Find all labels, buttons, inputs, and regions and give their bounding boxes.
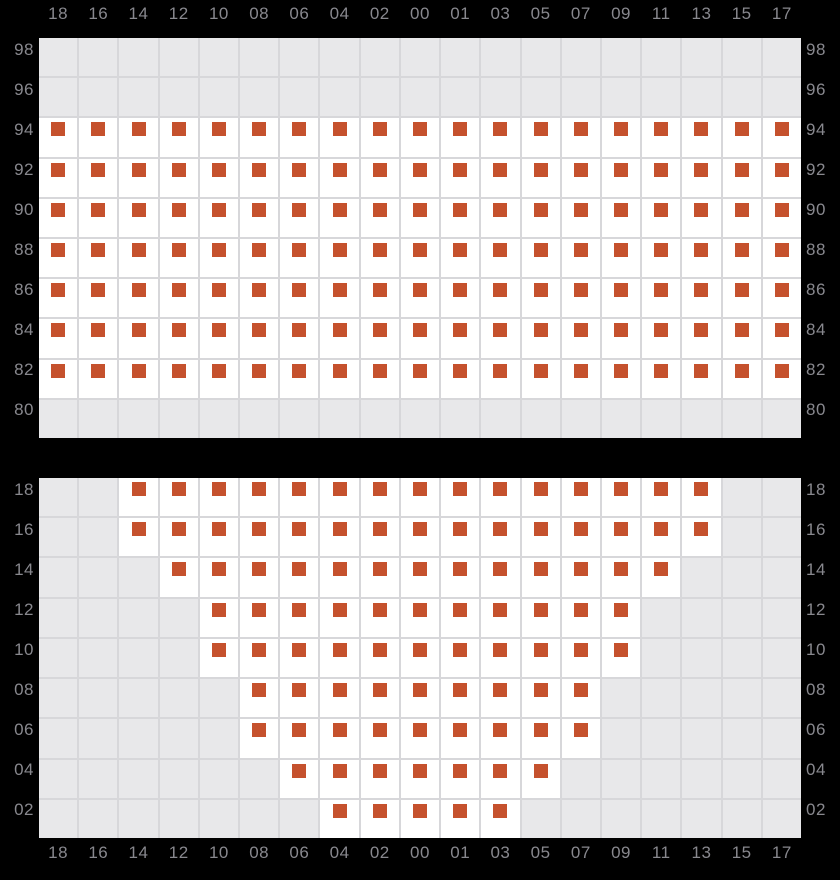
data-point-marker: [453, 122, 467, 136]
grid-cell-02-90[interactable]: [361, 199, 399, 237]
grid-cell-08-82[interactable]: [240, 360, 278, 398]
grid-cell-14-84[interactable]: [119, 319, 157, 357]
grid-cell-17-86[interactable]: [763, 279, 801, 317]
grid-cell-01-04[interactable]: [441, 760, 479, 798]
grid-cell-03-88[interactable]: [481, 239, 519, 277]
grid-cell-03-92[interactable]: [481, 159, 519, 197]
data-point-marker: [132, 243, 146, 257]
grid-cell-14-06: [119, 719, 157, 757]
grid-cell-16-94[interactable]: [79, 118, 117, 156]
grid-cell-11-18[interactable]: [642, 478, 680, 516]
grid-cell-16-92[interactable]: [79, 159, 117, 197]
grid-cell-09-18[interactable]: [602, 478, 640, 516]
data-point-marker: [212, 203, 226, 217]
grid-cell-14-80: [119, 400, 157, 438]
grid-cell-10-12[interactable]: [200, 599, 238, 637]
grid-cell-13-94[interactable]: [682, 118, 720, 156]
data-point-marker: [292, 482, 306, 496]
grid-cell-08-86[interactable]: [240, 279, 278, 317]
data-point-marker: [212, 323, 226, 337]
grid-cell-06-16[interactable]: [280, 518, 318, 556]
grid-cell-07-90[interactable]: [562, 199, 600, 237]
grid-cell-04-88[interactable]: [320, 239, 358, 277]
grid-cell-14-92[interactable]: [119, 159, 157, 197]
grid-cell-15-84[interactable]: [723, 319, 761, 357]
grid-cell-12-12: [160, 599, 198, 637]
grid-cell-05-12[interactable]: [522, 599, 560, 637]
grid-cell-05-98: [522, 38, 560, 76]
grid-cell-00-82[interactable]: [401, 360, 439, 398]
data-point-marker: [252, 603, 266, 617]
grid-cell-06-12[interactable]: [280, 599, 318, 637]
grid-cell-08-92[interactable]: [240, 159, 278, 197]
grid-cell-04-10[interactable]: [320, 639, 358, 677]
data-point-marker: [132, 163, 146, 177]
grid-cell-17-90[interactable]: [763, 199, 801, 237]
grid-cell-01-84[interactable]: [441, 319, 479, 357]
grid-cell-09-94[interactable]: [602, 118, 640, 156]
grid-cell-01-92[interactable]: [441, 159, 479, 197]
grid-cell-07-16[interactable]: [562, 518, 600, 556]
grid-cell-02-18[interactable]: [361, 478, 399, 516]
grid-cell-13-84[interactable]: [682, 319, 720, 357]
grid-cell-14-86[interactable]: [119, 279, 157, 317]
grid-cell-01-86[interactable]: [441, 279, 479, 317]
grid-cell-02-94[interactable]: [361, 118, 399, 156]
grid-cell-11-16[interactable]: [642, 518, 680, 556]
grid-cell-10-82[interactable]: [200, 360, 238, 398]
grid-cell-03-18[interactable]: [481, 478, 519, 516]
grid-cell-18-98: [39, 38, 77, 76]
grid-cell-15-06: [723, 719, 761, 757]
data-point-marker: [212, 643, 226, 657]
grid-cell-17-88[interactable]: [763, 239, 801, 277]
grid-cell-15-82[interactable]: [723, 360, 761, 398]
grid-cell-14-90[interactable]: [119, 199, 157, 237]
grid-cell-02-04[interactable]: [361, 760, 399, 798]
grid-cell-06-82[interactable]: [280, 360, 318, 398]
grid-cell-00-98: [401, 38, 439, 76]
data-point-marker: [775, 243, 789, 257]
data-point-marker: [172, 364, 186, 378]
grid-cell-06-18[interactable]: [280, 478, 318, 516]
grid-cell-01-16[interactable]: [441, 518, 479, 556]
grid-cell-00-02[interactable]: [401, 800, 439, 838]
grid-cell-08-88[interactable]: [240, 239, 278, 277]
grid-cell-11-82[interactable]: [642, 360, 680, 398]
grid-cell-03-98: [481, 38, 519, 76]
x-axis-label: 18: [39, 843, 77, 863]
grid-cell-10-88[interactable]: [200, 239, 238, 277]
data-point-marker: [453, 683, 467, 697]
grid-cell-04-82[interactable]: [320, 360, 358, 398]
grid-cell-06-84[interactable]: [280, 319, 318, 357]
data-point-marker: [654, 562, 668, 576]
grid-cell-03-94[interactable]: [481, 118, 519, 156]
grid-cell-09-10[interactable]: [602, 639, 640, 677]
grid-cell-01-88[interactable]: [441, 239, 479, 277]
grid-cell-16-82[interactable]: [79, 360, 117, 398]
grid-cell-12-02: [160, 800, 198, 838]
grid-cell-00-14[interactable]: [401, 558, 439, 596]
data-point-marker: [614, 643, 628, 657]
grid-cell-06-94[interactable]: [280, 118, 318, 156]
grid-cell-07-14[interactable]: [562, 558, 600, 596]
grid-cell-07-84[interactable]: [562, 319, 600, 357]
grid-cell-00-86[interactable]: [401, 279, 439, 317]
grid-cell-05-82[interactable]: [522, 360, 560, 398]
data-point-marker: [534, 323, 548, 337]
data-point-marker: [252, 203, 266, 217]
grid-cell-04-84[interactable]: [320, 319, 358, 357]
grid-cell-09-88[interactable]: [602, 239, 640, 277]
grid-cell-01-90[interactable]: [441, 199, 479, 237]
grid-cell-04-90[interactable]: [320, 199, 358, 237]
grid-cell-10-94[interactable]: [200, 118, 238, 156]
grid-cell-02-86[interactable]: [361, 279, 399, 317]
grid-cell-03-06[interactable]: [481, 719, 519, 757]
data-point-marker: [172, 122, 186, 136]
data-point-marker: [413, 804, 427, 818]
data-point-marker: [534, 482, 548, 496]
grid-cell-08-08[interactable]: [240, 679, 278, 717]
grid-cell-18-82[interactable]: [39, 360, 77, 398]
grid-cell-17-84[interactable]: [763, 319, 801, 357]
data-point-marker: [252, 683, 266, 697]
data-point-marker: [534, 764, 548, 778]
data-point-marker: [413, 364, 427, 378]
grid-cell-07-94[interactable]: [562, 118, 600, 156]
grid-cell-03-82[interactable]: [481, 360, 519, 398]
grid-cell-06-04[interactable]: [280, 760, 318, 798]
grid-cell-14-14: [119, 558, 157, 596]
grid-cell-06-06[interactable]: [280, 719, 318, 757]
grid-cell-01-82[interactable]: [441, 360, 479, 398]
y-axis-label: 12: [0, 598, 34, 638]
grid-cell-07-08[interactable]: [562, 679, 600, 717]
grid-cell-06-96: [280, 78, 318, 116]
data-point-marker: [493, 683, 507, 697]
grid-cell-03-16[interactable]: [481, 518, 519, 556]
grid-cell-12-90[interactable]: [160, 199, 198, 237]
grid-cell-01-02[interactable]: [441, 800, 479, 838]
grid-cell-04-06[interactable]: [320, 719, 358, 757]
grid-cell-01-14[interactable]: [441, 558, 479, 596]
grid-cell-12-92[interactable]: [160, 159, 198, 197]
grid-cell-09-98: [602, 38, 640, 76]
grid-cell-15-02: [723, 800, 761, 838]
grid-cell-08-12[interactable]: [240, 599, 278, 637]
grid-cell-11-88[interactable]: [642, 239, 680, 277]
grid-cell-02-06[interactable]: [361, 719, 399, 757]
grid-cell-07-82[interactable]: [562, 360, 600, 398]
grid-cell-08-10[interactable]: [240, 639, 278, 677]
x-axis-label: 15: [723, 4, 761, 24]
y-axis-label: 90: [0, 198, 34, 238]
grid-cell-12-84[interactable]: [160, 319, 198, 357]
grid-cell-01-08[interactable]: [441, 679, 479, 717]
grid-cell-04-16[interactable]: [320, 518, 358, 556]
grid-cell-05-16[interactable]: [522, 518, 560, 556]
grid-cell-15-92[interactable]: [723, 159, 761, 197]
grid-cell-03-84[interactable]: [481, 319, 519, 357]
grid-cell-09-14[interactable]: [602, 558, 640, 596]
grid-cell-16-90[interactable]: [79, 199, 117, 237]
data-point-marker: [333, 122, 347, 136]
grid-cell-02-08[interactable]: [361, 679, 399, 717]
x-axis-label: 02: [361, 4, 399, 24]
grid-cell-00-88[interactable]: [401, 239, 439, 277]
grid-cell-13-88[interactable]: [682, 239, 720, 277]
grid-cell-16-14: [79, 558, 117, 596]
grid-cell-09-96: [602, 78, 640, 116]
grid-cell-03-14[interactable]: [481, 558, 519, 596]
grid-cell-04-94[interactable]: [320, 118, 358, 156]
grid-cell-13-18[interactable]: [682, 478, 720, 516]
grid-cell-16-86[interactable]: [79, 279, 117, 317]
x-axis-label: 05: [522, 4, 560, 24]
grid-cell-06-08[interactable]: [280, 679, 318, 717]
grid-cell-10-16[interactable]: [200, 518, 238, 556]
grid-cell-10-84[interactable]: [200, 319, 238, 357]
y-axis-label: 86: [806, 278, 840, 318]
grid-cell-02-84[interactable]: [361, 319, 399, 357]
grid-cell-04-04[interactable]: [320, 760, 358, 798]
data-point-marker: [614, 163, 628, 177]
grid-cell-06-92[interactable]: [280, 159, 318, 197]
grid-cell-18-90[interactable]: [39, 199, 77, 237]
grid-cell-09-92[interactable]: [602, 159, 640, 197]
grid-cell-18-88[interactable]: [39, 239, 77, 277]
data-point-marker: [51, 122, 65, 136]
grid-cell-16-18: [79, 478, 117, 516]
grid-cell-00-10[interactable]: [401, 639, 439, 677]
grid-cell-12-86[interactable]: [160, 279, 198, 317]
grid-cell-00-12[interactable]: [401, 599, 439, 637]
grid-cell-07-86[interactable]: [562, 279, 600, 317]
grid-cell-09-82[interactable]: [602, 360, 640, 398]
grid-cell-09-90[interactable]: [602, 199, 640, 237]
grid-cell-06-86[interactable]: [280, 279, 318, 317]
grid-cell-01-12[interactable]: [441, 599, 479, 637]
grid-cell-12-14[interactable]: [160, 558, 198, 596]
grid-cell-03-12[interactable]: [481, 599, 519, 637]
grid-cell-00-04[interactable]: [401, 760, 439, 798]
data-point-marker: [493, 364, 507, 378]
data-point-marker: [373, 163, 387, 177]
grid-cell-01-18[interactable]: [441, 478, 479, 516]
grid-cell-11-92[interactable]: [642, 159, 680, 197]
grid-cell-14-94[interactable]: [119, 118, 157, 156]
x-axis-label: 06: [280, 4, 318, 24]
grid-cell-15-90[interactable]: [723, 199, 761, 237]
grid-cell-08-06[interactable]: [240, 719, 278, 757]
grid-cell-07-18[interactable]: [562, 478, 600, 516]
grid-cell-14-04: [119, 760, 157, 798]
y-axis-label: 06: [806, 718, 840, 758]
grid-cell-13-92[interactable]: [682, 159, 720, 197]
grid-cell-10-10[interactable]: [200, 639, 238, 677]
grid-cell-11-84[interactable]: [642, 319, 680, 357]
grid-cell-05-18[interactable]: [522, 478, 560, 516]
grid-cell-01-94[interactable]: [441, 118, 479, 156]
grid-cell-05-04[interactable]: [522, 760, 560, 798]
grid-cell-04-86[interactable]: [320, 279, 358, 317]
grid-cell-17-82[interactable]: [763, 360, 801, 398]
grid-cell-12-94[interactable]: [160, 118, 198, 156]
data-point-marker: [91, 203, 105, 217]
grid-cell-13-90[interactable]: [682, 199, 720, 237]
data-point-marker: [172, 283, 186, 297]
grid-cell-00-94[interactable]: [401, 118, 439, 156]
grid-cell-13-82[interactable]: [682, 360, 720, 398]
grid-cell-05-90[interactable]: [522, 199, 560, 237]
grid-cell-05-86[interactable]: [522, 279, 560, 317]
grid-cell-00-90[interactable]: [401, 199, 439, 237]
grid-cell-11-14[interactable]: [642, 558, 680, 596]
grid-cell-18-94[interactable]: [39, 118, 77, 156]
grid-cell-11-94[interactable]: [642, 118, 680, 156]
grid-cell-05-14[interactable]: [522, 558, 560, 596]
data-point-marker: [333, 364, 347, 378]
data-point-marker: [333, 522, 347, 536]
grid-cell-14-18[interactable]: [119, 478, 157, 516]
grid-cell-10-14[interactable]: [200, 558, 238, 596]
data-point-marker: [453, 163, 467, 177]
grid-cell-12-88[interactable]: [160, 239, 198, 277]
data-point-marker: [534, 122, 548, 136]
grid-cell-00-84[interactable]: [401, 319, 439, 357]
grid-cell-02-16[interactable]: [361, 518, 399, 556]
grid-cell-12-82[interactable]: [160, 360, 198, 398]
grid-cell-05-84[interactable]: [522, 319, 560, 357]
grid-cell-08-84[interactable]: [240, 319, 278, 357]
grid-cell-06-90[interactable]: [280, 199, 318, 237]
grid-cell-05-92[interactable]: [522, 159, 560, 197]
grid-cell-05-94[interactable]: [522, 118, 560, 156]
grid-cell-02-10[interactable]: [361, 639, 399, 677]
grid-cell-05-06[interactable]: [522, 719, 560, 757]
grid-cell-08-18[interactable]: [240, 478, 278, 516]
grid-cell-02-12[interactable]: [361, 599, 399, 637]
grid-cell-08-14[interactable]: [240, 558, 278, 596]
grid-cell-15-88[interactable]: [723, 239, 761, 277]
grid-cell-04-08[interactable]: [320, 679, 358, 717]
grid-cell-07-88[interactable]: [562, 239, 600, 277]
grid-cell-00-06[interactable]: [401, 719, 439, 757]
grid-cell-03-02[interactable]: [481, 800, 519, 838]
grid-cell-07-06[interactable]: [562, 719, 600, 757]
grid-cell-09-84[interactable]: [602, 319, 640, 357]
grid-cell-05-08[interactable]: [522, 679, 560, 717]
grid-cell-10-90[interactable]: [200, 199, 238, 237]
grid-cell-04-14[interactable]: [320, 558, 358, 596]
grid-cell-00-08[interactable]: [401, 679, 439, 717]
grid-cell-04-92[interactable]: [320, 159, 358, 197]
data-point-marker: [172, 323, 186, 337]
grid-cell-01-06[interactable]: [441, 719, 479, 757]
grid-cell-07-12[interactable]: [562, 599, 600, 637]
grid-cell-03-86[interactable]: [481, 279, 519, 317]
grid-cell-14-88[interactable]: [119, 239, 157, 277]
grid-cell-07-10[interactable]: [562, 639, 600, 677]
grid-cell-06-10[interactable]: [280, 639, 318, 677]
grid-cell-05-10[interactable]: [522, 639, 560, 677]
grid-cell-15-12: [723, 599, 761, 637]
grid-cell-00-16[interactable]: [401, 518, 439, 556]
grid-cell-08-16[interactable]: [240, 518, 278, 556]
grid-cell-10-18[interactable]: [200, 478, 238, 516]
grid-cell-06-14[interactable]: [280, 558, 318, 596]
grid-cell-02-88[interactable]: [361, 239, 399, 277]
grid-cell-05-88[interactable]: [522, 239, 560, 277]
grid-cell-03-90[interactable]: [481, 199, 519, 237]
grid-cell-02-82[interactable]: [361, 360, 399, 398]
data-point-marker: [333, 804, 347, 818]
grid-cell-06-88[interactable]: [280, 239, 318, 277]
grid-cell-12-18[interactable]: [160, 478, 198, 516]
grid-cell-11-90[interactable]: [642, 199, 680, 237]
data-point-marker: [493, 243, 507, 257]
grid-cell-10-86[interactable]: [200, 279, 238, 317]
grid-cell-12-16[interactable]: [160, 518, 198, 556]
grid-cell-04-18[interactable]: [320, 478, 358, 516]
data-point-marker: [132, 283, 146, 297]
grid-cell-03-04[interactable]: [481, 760, 519, 798]
grid-cell-17-92[interactable]: [763, 159, 801, 197]
grid-cell-14-16[interactable]: [119, 518, 157, 556]
grid-cell-12-08: [160, 679, 198, 717]
grid-cell-08-90[interactable]: [240, 199, 278, 237]
grid-cell-09-86[interactable]: [602, 279, 640, 317]
grid-cell-09-12[interactable]: [602, 599, 640, 637]
grid-cell-18-92[interactable]: [39, 159, 77, 197]
grid-cell-17-94[interactable]: [763, 118, 801, 156]
grid-cell-18-84[interactable]: [39, 319, 77, 357]
grid-cell-15-86[interactable]: [723, 279, 761, 317]
grid-cell-13-86[interactable]: [682, 279, 720, 317]
grid-cell-09-80: [602, 400, 640, 438]
grid-cell-03-08[interactable]: [481, 679, 519, 717]
grid-cell-00-92[interactable]: [401, 159, 439, 197]
data-point-marker: [453, 804, 467, 818]
grid-cell-14-82[interactable]: [119, 360, 157, 398]
grid-cell-18-16: [39, 518, 77, 556]
data-point-marker: [453, 764, 467, 778]
data-point-marker: [333, 723, 347, 737]
data-point-marker: [654, 364, 668, 378]
grid-cell-07-92[interactable]: [562, 159, 600, 197]
grid-cell-10-92[interactable]: [200, 159, 238, 197]
grid-cell-16-84[interactable]: [79, 319, 117, 357]
grid-cell-02-92[interactable]: [361, 159, 399, 197]
data-point-marker: [132, 482, 146, 496]
grid-cell-15-94[interactable]: [723, 118, 761, 156]
grid-cell-02-02[interactable]: [361, 800, 399, 838]
grid-cell-13-16[interactable]: [682, 518, 720, 556]
grid-cell-01-10[interactable]: [441, 639, 479, 677]
grid-cell-18-86[interactable]: [39, 279, 77, 317]
grid-cell-02-14[interactable]: [361, 558, 399, 596]
grid-cell-11-86[interactable]: [642, 279, 680, 317]
grid-cell-03-10[interactable]: [481, 639, 519, 677]
grid-cell-16-88[interactable]: [79, 239, 117, 277]
grid-cell-04-12[interactable]: [320, 599, 358, 637]
grid-cell-08-94[interactable]: [240, 118, 278, 156]
grid-cell-09-16[interactable]: [602, 518, 640, 556]
grid-cell-04-02[interactable]: [320, 800, 358, 838]
grid-cell-00-18[interactable]: [401, 478, 439, 516]
